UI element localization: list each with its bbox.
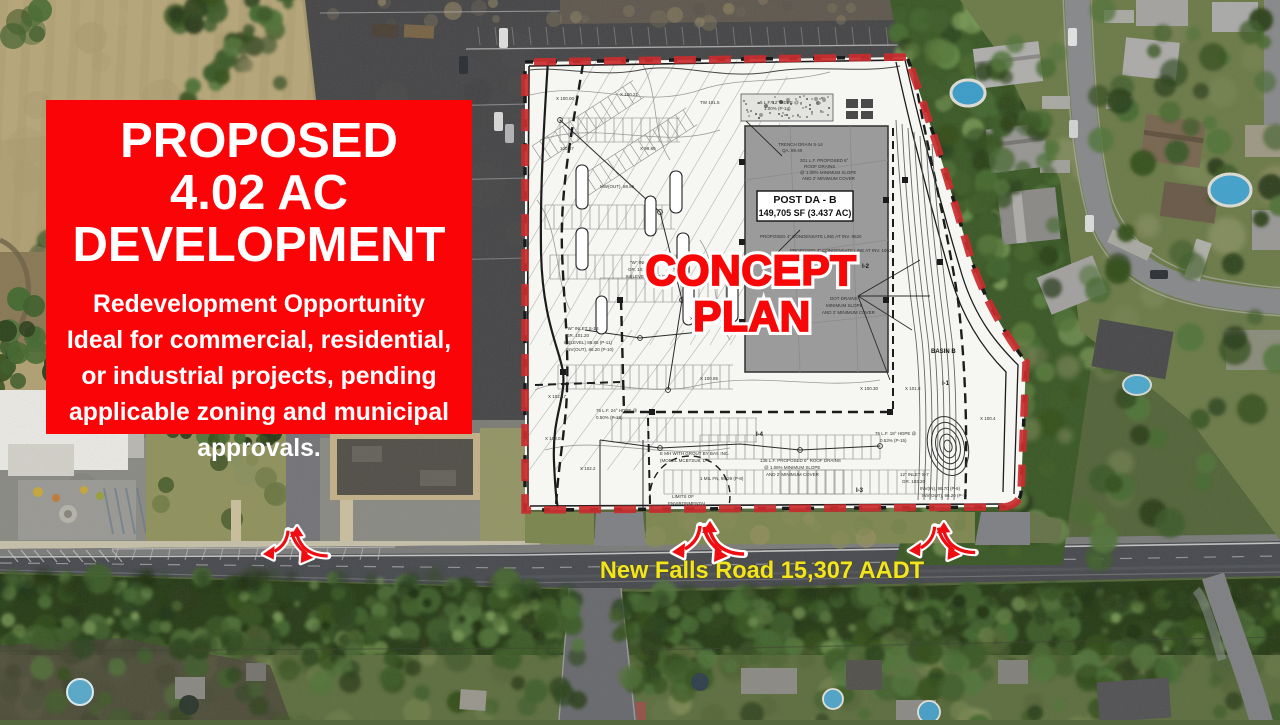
svg-text:MINIMUM SLOPE: MINIMUM SLOPE (826, 303, 863, 308)
svg-text:I-1: I-1 (942, 381, 950, 387)
svg-text:12" INLET S-7: 12" INLET S-7 (900, 472, 929, 477)
svg-text:0.50% (P-18): 0.50% (P-18) (596, 415, 623, 420)
svg-text:136 L.F. PROPOSED 6° ROOF DRAI: 136 L.F. PROPOSED 6° ROOF DRAINS (760, 458, 841, 463)
svg-text:I-4: I-4 (756, 432, 764, 438)
svg-text:POST DA - B: POST DA - B (773, 194, 837, 206)
svg-text:approvals.: approvals. (197, 435, 321, 462)
svg-text:I-2: I-2 (862, 264, 870, 270)
svg-text:0.53% (P-15): 0.53% (P-15) (880, 438, 907, 443)
svg-text:Ideal for commercial, resident: Ideal for commercial, residential, (67, 327, 451, 354)
svg-text:AND 2' MINIMUM COVER: AND 2' MINIMUM COVER (802, 176, 856, 181)
svg-text:1 MIL FN, 98.29 (P-8): 1 MIL FN, 98.29 (P-8) (700, 476, 744, 481)
svg-text:Redevelopment Opportunity: Redevelopment Opportunity (93, 291, 425, 318)
svg-text:DEVELOPMENT: DEVELOPMENT (73, 218, 446, 272)
svg-text:E MH WITH GROUT BY BAY. INC.: E MH WITH GROUT BY BAY. INC. (660, 451, 729, 456)
svg-text:@ 1.08% MINIMUM SLOPE: @ 1.08% MINIMUM SLOPE (764, 465, 820, 470)
svg-text:"W" INLET S-1B: "W" INLET S-1B (566, 326, 599, 331)
svg-text:84(LEVEL) 86.85 (P-11): 84(LEVEL) 86.85 (P-11) (564, 340, 612, 345)
svg-text:149,705 SF (3.437 AC): 149,705 SF (3.437 AC) (759, 208, 852, 218)
svg-text:or industrial projects, pendin: or industrial projects, pending (81, 363, 436, 390)
svg-text:X 100.21: X 100.21 (620, 92, 639, 97)
svg-text:X 101.8: X 101.8 (905, 386, 921, 391)
svg-text:GR. 101: GR. 101 (628, 267, 645, 272)
svg-text:GR. 103.20: GR. 103.20 (902, 479, 926, 484)
svg-text:TW 101.5: TW 101.5 (700, 100, 720, 105)
svg-text:4.02 AC: 4.02 AC (170, 166, 348, 220)
svg-text:PLAN: PLAN (693, 294, 811, 341)
svg-text:INV(OUT), 86.20 (P-10): INV(OUT), 86.20 (P-10) (566, 347, 614, 352)
svg-text:LIMITS OF: LIMITS OF (672, 494, 694, 499)
svg-text:DOT DRAINS: DOT DRAINS (830, 296, 858, 301)
svg-text:PROPOSED 4" CONDENSATE LINE AT: PROPOSED 4" CONDENSATE LINE AT INV. 8620 (760, 234, 862, 239)
svg-text:applicable zoning and municipa: applicable zoning and municipal (69, 399, 449, 426)
svg-text:1.00% (P-14): 1.00% (P-14) (764, 106, 791, 111)
svg-text:X 103.0: X 103.0 (545, 436, 561, 441)
svg-text:76 L.F. 24° HDPE @: 76 L.F. 24° HDPE @ (596, 408, 638, 413)
svg-text:ROOF DRAINS: ROOF DRAINS (804, 164, 835, 169)
svg-text:X 100.30: X 100.30 (860, 386, 879, 391)
svg-text:TRENCH DRAIN S-14: TRENCH DRAIN S-14 (778, 142, 823, 147)
svg-text:INV(OUT), 98.20 (P-7): INV(OUT), 98.20 (P-7) (922, 493, 968, 498)
svg-text:QA. 89.40: QA. 89.40 (782, 148, 803, 153)
svg-text:X 100.00: X 100.00 (556, 96, 575, 101)
svg-text:MW(OUT), 86.85: MW(OUT), 86.85 (600, 184, 635, 189)
svg-text:X 99.80: X 99.80 (640, 146, 656, 151)
svg-text:@ 1.08% MINIMUM SLOPE: @ 1.08% MINIMUM SLOPE (800, 170, 856, 175)
svg-text:76 L.F. 18° HDPE @: 76 L.F. 18° HDPE @ (875, 431, 917, 436)
svg-text:GR. 101.20: GR. 101.20 (566, 333, 590, 338)
svg-text:X 102.2: X 102.2 (580, 466, 596, 471)
svg-text:New Falls Road 15,307 AADT: New Falls Road 15,307 AADT (600, 558, 925, 584)
svg-text:AND 2' MINIMUM COVER: AND 2' MINIMUM COVER (766, 472, 820, 477)
svg-text:X 100.85: X 100.85 (700, 376, 719, 381)
svg-text:BASIN B: BASIN B (931, 349, 956, 355)
svg-text:AND 2' MINIMUM COVER: AND 2' MINIMUM COVER (822, 310, 876, 315)
svg-text:201 L.F. PROPOSED 6°: 201 L.F. PROPOSED 6° (800, 158, 849, 163)
svg-text:INV(IN), 98.70 (P-6): INV(IN), 98.70 (P-6) (920, 486, 961, 491)
svg-text:I-3: I-3 (856, 488, 864, 494)
svg-text:5 L.F. 12° HDPE @: 5 L.F. 12° HDPE @ (760, 100, 799, 105)
svg-text:X 102.47: X 102.47 (548, 394, 567, 399)
svg-text:(MODEL MCBTSU8, D-6: (MODEL MCBTSU8, D-6 (660, 458, 710, 463)
svg-text:CONCEPT: CONCEPT (645, 248, 856, 295)
svg-text:PROPOSED: PROPOSED (120, 114, 398, 168)
svg-text:X 100.4: X 100.4 (980, 416, 996, 421)
svg-text:100.47: 100.47 (560, 146, 574, 151)
